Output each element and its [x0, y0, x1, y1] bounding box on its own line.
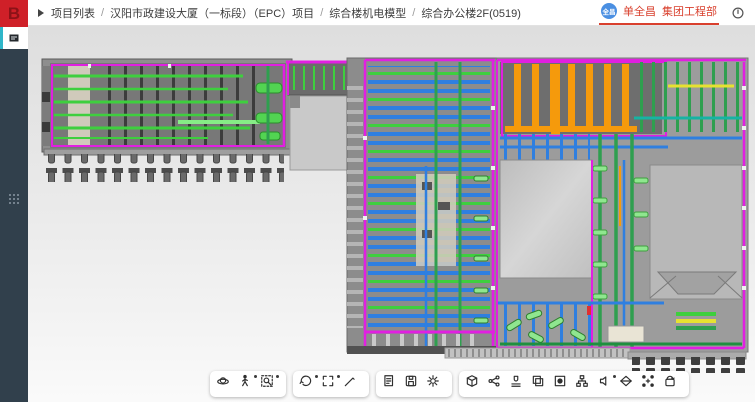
viewer-toolbar — [210, 371, 689, 397]
badge-dot — [613, 375, 616, 378]
model-box-button[interactable] — [465, 374, 485, 394]
audio-note-icon — [597, 374, 611, 388]
flip-3d-button[interactable] — [619, 374, 639, 394]
export-doc-icon — [382, 374, 396, 388]
toolbar-group-4 — [459, 371, 689, 397]
orbit-3d-icon — [216, 374, 230, 388]
save-view-button[interactable] — [404, 374, 424, 394]
fit-view-icon — [321, 374, 335, 388]
model-left-wing — [42, 59, 292, 182]
copy-icon — [531, 374, 545, 388]
scatter-select-button[interactable] — [641, 374, 661, 394]
export-doc-button[interactable] — [382, 374, 402, 394]
share-button[interactable] — [487, 374, 507, 394]
badge-dot — [254, 375, 257, 378]
user-area: 全昌 单全昌 集团工程部 — [599, 0, 719, 25]
toolbar-group-3 — [376, 371, 452, 397]
top-bar: 项目列表/汉阳市政建设大厦（一标段）（EPC）项目/综合楼机电模型/综合办公楼2… — [28, 0, 755, 26]
model-viewport[interactable] — [28, 26, 755, 402]
measure-button[interactable] — [343, 374, 363, 394]
breadcrumb-item-2[interactable]: 综合楼机电模型 — [329, 5, 406, 21]
view-rotate-button[interactable] — [299, 374, 319, 394]
play-triangle-icon[interactable] — [38, 9, 44, 17]
focus-target-icon — [553, 374, 567, 388]
reset-rotate-button[interactable] — [663, 374, 683, 394]
view-rotate-icon — [299, 374, 313, 388]
orbit-3d-button[interactable] — [216, 374, 236, 394]
toolbar-group-2 — [293, 371, 369, 397]
zoom-window-icon — [260, 374, 274, 388]
breadcrumb-separator: / — [412, 7, 415, 19]
focus-target-button[interactable] — [553, 374, 573, 394]
zoom-window-button[interactable] — [260, 374, 280, 394]
layers-icon — [8, 32, 20, 44]
settings-icon — [426, 374, 440, 388]
user-name[interactable]: 单全昌 — [623, 3, 656, 19]
audio-note-button[interactable] — [597, 374, 617, 394]
stamp-button[interactable] — [509, 374, 529, 394]
scatter-select-icon — [641, 374, 655, 388]
settings-button[interactable] — [426, 374, 446, 394]
app-logo[interactable]: B — [0, 0, 28, 27]
structure-tree-icon — [575, 374, 589, 388]
breadcrumb-item-3[interactable]: 综合办公楼2F(0519) — [421, 5, 521, 21]
model-middle-strip — [347, 58, 497, 354]
stamp-icon — [509, 374, 523, 388]
reset-rotate-icon — [663, 374, 677, 388]
model-box-icon — [465, 374, 479, 388]
badge-dot — [315, 375, 318, 378]
walk-mode-icon — [238, 374, 252, 388]
measure-icon — [343, 374, 357, 388]
toolbar-group-1 — [210, 371, 286, 397]
power-icon[interactable] — [731, 6, 745, 20]
save-view-icon — [404, 374, 418, 388]
breadcrumb-item-1[interactable]: 汉阳市政建设大厦（一标段）（EPC）项目 — [110, 5, 314, 21]
breadcrumb-separator: / — [320, 7, 323, 19]
apps-grid-icon — [9, 194, 19, 204]
breadcrumb-item-0[interactable]: 项目列表 — [51, 5, 95, 21]
topbar-right: 全昌 单全昌 集团工程部 — [599, 0, 745, 25]
breadcrumb: 项目列表/汉阳市政建设大厦（一标段）（EPC）项目/综合楼机电模型/综合办公楼2… — [38, 5, 521, 21]
model-connector — [286, 61, 354, 170]
sidebar-item-layers[interactable] — [0, 27, 28, 49]
walk-mode-button[interactable] — [238, 374, 258, 394]
user-department[interactable]: 集团工程部 — [662, 3, 717, 19]
model-canvas — [28, 26, 755, 402]
badge-dot — [276, 375, 279, 378]
user-avatar[interactable]: 全昌 — [601, 3, 617, 19]
share-icon — [487, 374, 501, 388]
left-sidebar: B — [0, 0, 28, 402]
badge-dot — [337, 375, 340, 378]
fit-view-button[interactable] — [321, 374, 341, 394]
flip-3d-icon — [619, 374, 633, 388]
structure-tree-button[interactable] — [575, 374, 595, 394]
breadcrumb-separator: / — [101, 7, 104, 19]
copy-button[interactable] — [531, 374, 551, 394]
sidebar-item-apps[interactable] — [0, 188, 28, 210]
